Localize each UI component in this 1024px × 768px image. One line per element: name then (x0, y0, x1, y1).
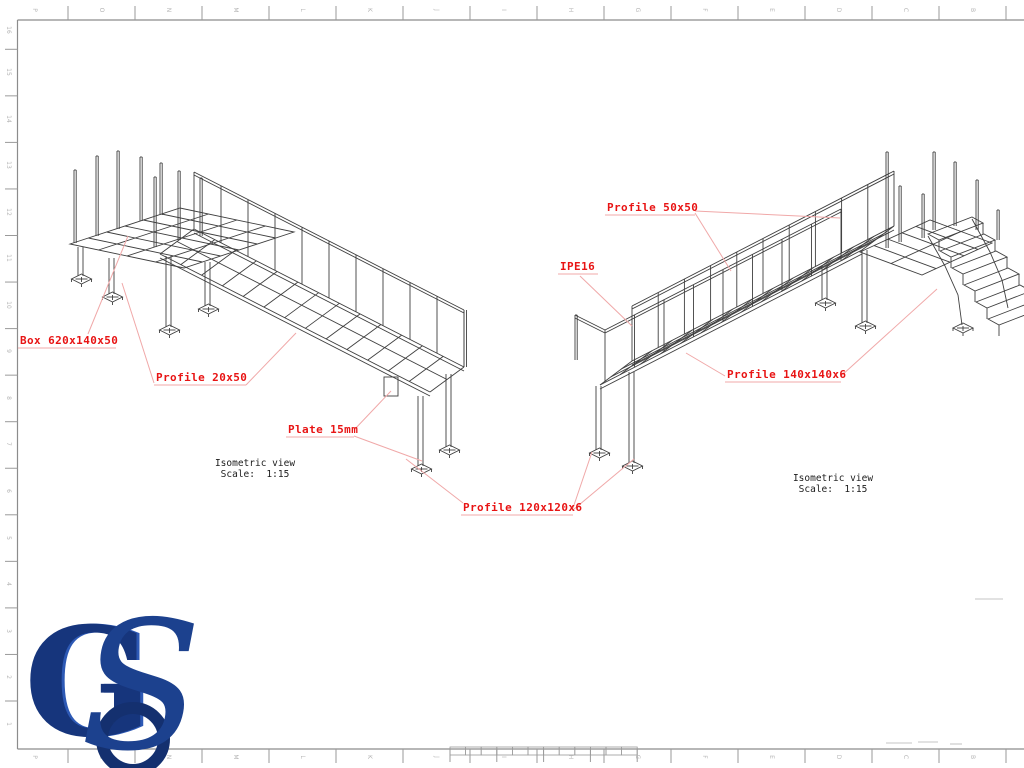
view-caption: Isometric viewScale: 1:15 (793, 473, 873, 495)
grid-label: N (164, 5, 172, 15)
grid-label: N (164, 752, 172, 762)
grid-label: L (298, 5, 306, 15)
annotation-label: Plate 15mm (288, 423, 358, 436)
grid-label: M (231, 5, 239, 15)
annotation-leaders (18, 211, 937, 515)
grid-label: P (30, 752, 38, 762)
grid-label: 16 (4, 24, 12, 36)
grid-label: E (767, 752, 775, 762)
grid-label: 5 (4, 532, 12, 544)
grid-label: I (499, 5, 507, 15)
grid-label: 1 (4, 718, 12, 730)
drawing-canvas (0, 0, 1024, 768)
view-caption: Isometric viewScale: 1:15 (215, 458, 295, 480)
caption-title: Isometric view (793, 473, 873, 484)
grid-label: H (566, 5, 574, 15)
grid-label: K (365, 5, 373, 15)
grid-label: 3 (4, 625, 12, 637)
grid-label: I (499, 752, 507, 762)
grid-label: K (365, 752, 373, 762)
grid-label: 12 (4, 206, 12, 218)
caption-title: Isometric view (215, 458, 295, 469)
grid-label: 9 (4, 345, 12, 357)
grid-label: H (566, 752, 574, 762)
caption-scale: Scale: 1:15 (215, 469, 295, 480)
annotation-label: Profile 20x50 (156, 371, 247, 384)
grid-label: 2 (4, 671, 12, 683)
grid-label: O (97, 5, 105, 15)
grid-label: J (432, 752, 440, 762)
grid-label: 10 (4, 299, 12, 311)
grid-label: G (633, 752, 641, 762)
grid-label: B (968, 5, 976, 15)
grid-label: P (30, 5, 38, 15)
annotation-label: Profile 140x140x6 (727, 368, 846, 381)
grid-label: D (834, 5, 842, 15)
grid-label: G (633, 5, 641, 15)
grid-label: B (968, 752, 976, 762)
grid-label: E (767, 5, 775, 15)
grid-label: 14 (4, 113, 12, 125)
grid-label: D (834, 752, 842, 762)
left-isometric-view (70, 151, 467, 477)
grid-label: 15 (4, 66, 12, 78)
grid-label: O (97, 752, 105, 762)
grid-label: L (298, 752, 306, 762)
grid-label: 6 (4, 485, 12, 497)
grid-label: C (901, 752, 909, 762)
drawing-sheet: Box 620x140x50Profile 20x50Plate 15mmPro… (0, 0, 1024, 768)
grid-label: F (700, 5, 708, 15)
annotation-label: Box 620x140x50 (20, 334, 118, 347)
grid-label: J (432, 5, 440, 15)
grid-label: 11 (4, 252, 12, 264)
grid-label: 7 (4, 438, 12, 450)
grid-label: F (700, 752, 708, 762)
watermark (886, 599, 1003, 744)
annotation-label: Profile 120x120x6 (463, 501, 582, 514)
grid-label: 8 (4, 392, 12, 404)
caption-scale: Scale: 1:15 (793, 484, 873, 495)
grid-label: 4 (4, 578, 12, 590)
grid-label: M (231, 752, 239, 762)
annotation-label: IPE16 (560, 260, 595, 273)
annotation-label: Profile 50x50 (607, 201, 698, 214)
grid-label: 13 (4, 159, 12, 171)
grid-label: C (901, 5, 909, 15)
